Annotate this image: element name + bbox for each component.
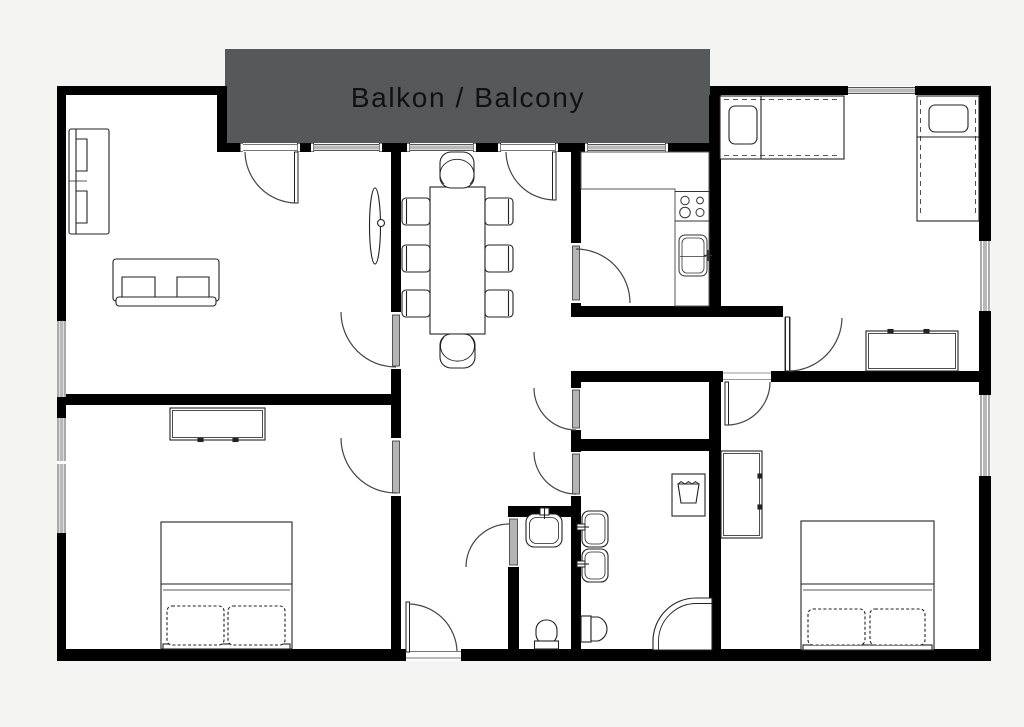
svg-text:Balkon / Balcony: Balkon / Balcony [351, 82, 585, 113]
